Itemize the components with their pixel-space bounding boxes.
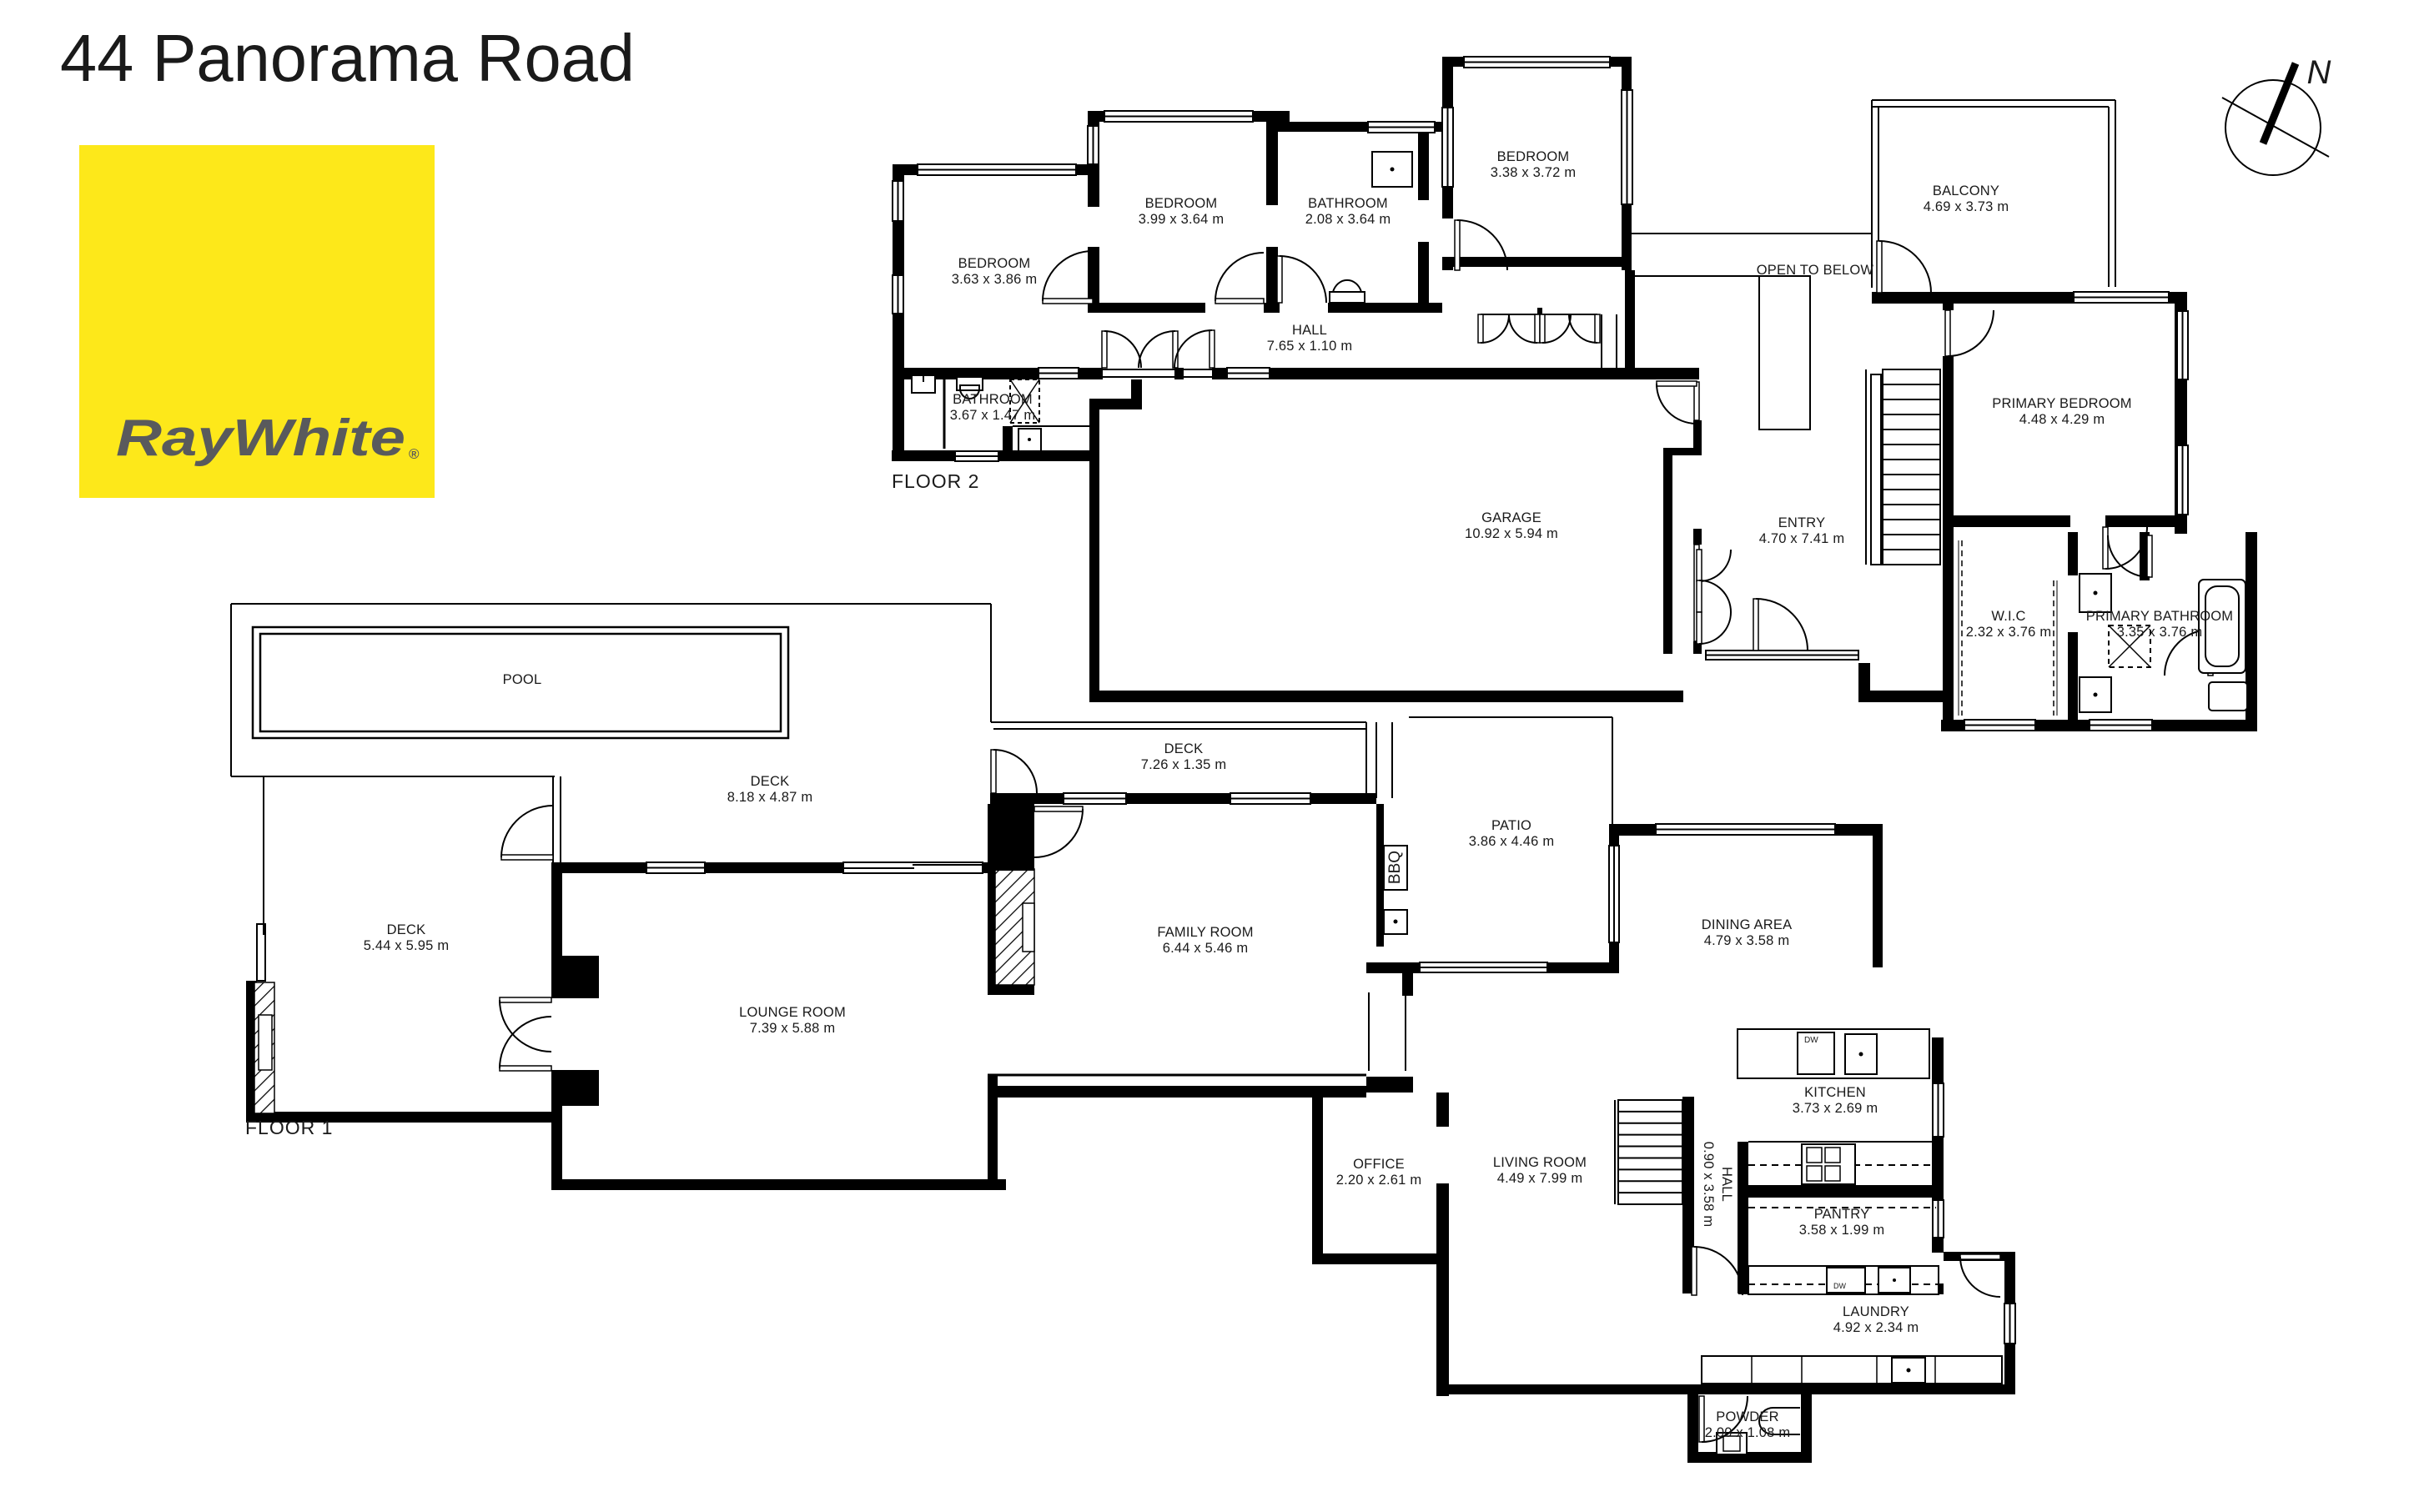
svg-text:DECK: DECK	[387, 922, 426, 937]
svg-text:3.99 x 3.64 m: 3.99 x 3.64 m	[1139, 212, 1225, 227]
svg-text:PRIMARY BATHROOM: PRIMARY BATHROOM	[2086, 609, 2233, 624]
svg-text:0.90 x 3.58 m: 0.90 x 3.58 m	[1701, 1142, 1716, 1228]
svg-text:7.65 x 1.10 m: 7.65 x 1.10 m	[1267, 339, 1353, 354]
svg-text:44 Panorama Road: 44 Panorama Road	[60, 21, 635, 95]
svg-text:KITCHEN: KITCHEN	[1804, 1085, 1866, 1100]
svg-text:DW: DW	[1804, 1036, 1818, 1045]
svg-text:8.18 x 4.87 m: 8.18 x 4.87 m	[727, 790, 813, 805]
svg-text:BALCONY: BALCONY	[1933, 183, 1999, 198]
svg-text:ENTRY: ENTRY	[1778, 515, 1826, 530]
svg-text:FLOOR 1: FLOOR 1	[245, 1117, 333, 1138]
svg-text:BATHROOM: BATHROOM	[1308, 196, 1388, 211]
svg-text:POWDER: POWDER	[1716, 1409, 1778, 1424]
svg-text:GARAGE: GARAGE	[1481, 510, 1541, 525]
svg-text:3.35 x 3.76 m: 3.35 x 3.76 m	[2117, 625, 2203, 640]
svg-text:4.49 x 7.99 m: 4.49 x 7.99 m	[1497, 1171, 1583, 1186]
svg-text:3.73 x 2.69 m: 3.73 x 2.69 m	[1793, 1101, 1878, 1116]
svg-text:4.69 x 3.73 m: 4.69 x 3.73 m	[1924, 199, 2009, 214]
svg-text:3.63 x 3.86 m: 3.63 x 3.86 m	[952, 272, 1038, 287]
svg-text:N: N	[2307, 54, 2331, 91]
svg-text:4.70 x 7.41 m: 4.70 x 7.41 m	[1759, 531, 1845, 546]
svg-text:2.00 x 1.08 m: 2.00 x 1.08 m	[1705, 1425, 1791, 1440]
svg-text:®: ®	[409, 446, 420, 462]
svg-text:DINING AREA: DINING AREA	[1702, 917, 1793, 932]
svg-text:LAUNDRY: LAUNDRY	[1843, 1304, 1909, 1319]
svg-text:OFFICE: OFFICE	[1353, 1157, 1405, 1172]
svg-text:BBQ: BBQ	[1386, 851, 1404, 884]
svg-text:RayWhite: RayWhite	[116, 409, 405, 467]
svg-text:BATHROOM: BATHROOM	[953, 392, 1033, 407]
svg-text:PRIMARY BEDROOM: PRIMARY BEDROOM	[1992, 396, 2131, 411]
svg-text:2.08 x 3.64 m: 2.08 x 3.64 m	[1305, 212, 1391, 227]
svg-text:PANTRY: PANTRY	[1814, 1207, 1870, 1222]
svg-text:6.44 x 5.46 m: 6.44 x 5.46 m	[1163, 941, 1249, 956]
svg-text:DW: DW	[1833, 1282, 1846, 1290]
svg-text:7.39 x 5.88 m: 7.39 x 5.88 m	[750, 1021, 836, 1036]
svg-text:OPEN TO BELOW: OPEN TO BELOW	[1757, 263, 1874, 278]
svg-text:BEDROOM: BEDROOM	[1497, 149, 1570, 164]
svg-text:2.20 x 2.61 m: 2.20 x 2.61 m	[1336, 1173, 1422, 1188]
svg-text:7.26 x 1.35 m: 7.26 x 1.35 m	[1141, 757, 1227, 772]
svg-text:BEDROOM: BEDROOM	[958, 256, 1031, 271]
svg-text:3.38 x 3.72 m: 3.38 x 3.72 m	[1491, 165, 1577, 180]
svg-text:POOL: POOL	[503, 672, 542, 687]
svg-text:PATIO: PATIO	[1491, 818, 1531, 833]
svg-text:10.92 x 5.94 m: 10.92 x 5.94 m	[1465, 526, 1558, 541]
svg-text:DECK: DECK	[751, 774, 790, 789]
svg-text:2.32 x 3.76 m: 2.32 x 3.76 m	[1966, 625, 2052, 640]
svg-text:HALL: HALL	[1292, 323, 1327, 338]
svg-text:LIVING ROOM: LIVING ROOM	[1493, 1155, 1587, 1170]
svg-text:3.86 x 4.46 m: 3.86 x 4.46 m	[1469, 834, 1555, 849]
svg-text:HALL: HALL	[1719, 1167, 1734, 1202]
svg-text:4.48 x 4.29 m: 4.48 x 4.29 m	[2019, 412, 2105, 427]
svg-text:3.67 x 1.47 m: 3.67 x 1.47 m	[950, 408, 1036, 423]
svg-text:4.79 x 3.58 m: 4.79 x 3.58 m	[1704, 933, 1790, 948]
svg-text:3.58 x 1.99 m: 3.58 x 1.99 m	[1799, 1223, 1885, 1238]
svg-text:FAMILY ROOM: FAMILY ROOM	[1157, 925, 1253, 940]
svg-text:FLOOR 2: FLOOR 2	[892, 470, 979, 492]
svg-text:LOUNGE ROOM: LOUNGE ROOM	[739, 1005, 846, 1020]
svg-text:4.92 x 2.34 m: 4.92 x 2.34 m	[1833, 1320, 1919, 1335]
svg-text:BEDROOM: BEDROOM	[1145, 196, 1218, 211]
svg-text:W.I.C: W.I.C	[1991, 609, 2025, 624]
svg-text:5.44 x 5.95 m: 5.44 x 5.95 m	[364, 938, 450, 953]
svg-text:DECK: DECK	[1164, 741, 1204, 756]
